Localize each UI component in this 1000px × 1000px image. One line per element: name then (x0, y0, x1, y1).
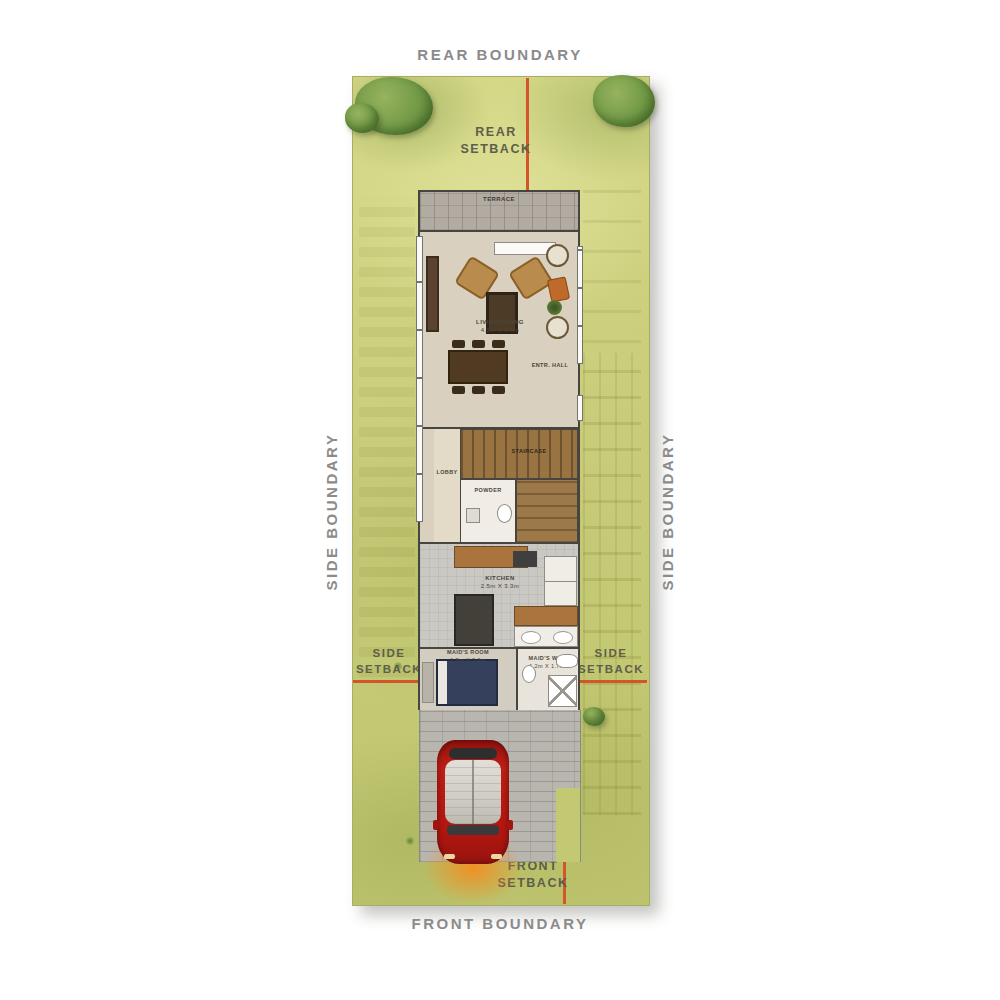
grass-tuft-icon (405, 837, 415, 845)
bush-icon (583, 707, 605, 726)
rear-setback-line1: REAR (444, 124, 548, 141)
headlight-icon (491, 854, 502, 859)
sink-icon (466, 508, 480, 523)
entry-hall-label: ENTR. HALL (522, 362, 578, 370)
accent-chair (547, 276, 570, 302)
powder-label: POWDER (461, 487, 515, 495)
room-lobby: LOBBY (434, 429, 461, 544)
cooking-range-icon (513, 551, 537, 567)
side-boundary-right-label: SIDE BOUNDARY (659, 427, 676, 597)
front-boundary-label: FRONT BOUNDARY (352, 915, 648, 932)
fridge-icon (544, 556, 577, 606)
side-boundary-left-label: SIDE BOUNDARY (323, 427, 340, 597)
car-mirror (433, 820, 439, 830)
car-icon (437, 740, 509, 870)
dining-chair (452, 386, 465, 394)
lawn-notch (556, 788, 580, 862)
house-footprint: TERRACE LIVING/DINING 4.2m X 3.6m ENTR. … (418, 190, 580, 710)
maid-room-name: MAID'S ROOM (447, 649, 489, 655)
dining-chair (472, 386, 485, 394)
lobby-label: LOBBY (434, 469, 460, 477)
window-band-left (416, 236, 423, 522)
maid-room-dims: 1.8m X 2.3m (426, 657, 510, 665)
living-dining-name: LIVING/DINING (476, 319, 524, 325)
dining-table (448, 350, 508, 384)
maid-room-label: MAID'S ROOM 1.8m X 2.3m (426, 649, 510, 664)
toilet-icon (497, 504, 512, 523)
pillow-icon (438, 661, 447, 704)
side-setback-line-right (578, 680, 647, 683)
dining-chair (492, 340, 505, 348)
deck-pattern-right (583, 353, 641, 815)
living-dining-label: LIVING/DINING 4.2m X 3.6m (454, 318, 546, 335)
kitchen-counter (454, 546, 528, 568)
deck-pattern-right-top (583, 173, 641, 343)
rear-setback-label: REAR SETBACK (444, 124, 548, 158)
living-dining-dims: 4.2m X 3.6m (454, 326, 546, 334)
sink-icon (521, 631, 541, 644)
side-setback-left-line2: SETBACK (350, 662, 428, 678)
side-table (546, 316, 569, 339)
kitchen-label: KITCHEN 2.5m X 3.3m (458, 574, 542, 591)
side-setback-right-line2: SETBACK (572, 662, 650, 678)
staircase-lower-flight (516, 479, 578, 544)
shower-icon (548, 675, 577, 707)
staircase-label: STAIRCASE (489, 448, 569, 456)
kitchen-dims: 2.5m X 3.3m (458, 582, 542, 590)
wardrobe-icon (422, 662, 434, 703)
side-table (546, 244, 569, 267)
entry-door-opening (577, 395, 583, 421)
room-terrace: TERRACE (420, 192, 578, 232)
fridge-divider (545, 581, 576, 582)
room-living-dining: LIVING/DINING 4.2m X 3.6m ENTR. HALL (420, 232, 578, 427)
car-roof (445, 760, 501, 824)
sink-icon (556, 654, 578, 668)
site-plan-canvas: REAR BOUNDARY FRONT BOUNDARY SIDE BOUNDA… (0, 0, 1000, 1000)
dining-chair (452, 340, 465, 348)
dining-chair (492, 386, 505, 394)
tv-unit (426, 256, 439, 332)
sink-icon (553, 631, 573, 644)
toilet-icon (522, 665, 536, 683)
plant-icon (547, 300, 562, 315)
side-setback-left-label: SIDE SETBACK (350, 646, 428, 677)
kitchen-island (454, 594, 494, 646)
room-powder: POWDER (460, 479, 516, 544)
kitchen-sink-counter (514, 626, 578, 647)
rear-setback-line2: SETBACK (444, 141, 548, 158)
kitchen-counter (514, 606, 578, 626)
car-windshield (447, 825, 499, 835)
headlight-icon (444, 854, 455, 859)
side-setback-right-label: SIDE SETBACK (572, 646, 650, 677)
lawn-texture-left (359, 197, 415, 677)
tree-icon (593, 75, 655, 127)
maid-zone: MAID'S ROOM 1.8m X 2.3m MAID'S W.C. 1.2m… (420, 647, 578, 710)
side-setback-left-line1: SIDE (350, 646, 428, 662)
rear-boundary-label: REAR BOUNDARY (352, 46, 648, 63)
stair-zone: LOBBY STAIRCASE POWDER (420, 427, 578, 544)
dining-chair (472, 340, 485, 348)
kitchen-name: KITCHEN (485, 575, 514, 581)
car-rear-window (449, 748, 497, 759)
car-mirror (507, 820, 513, 830)
room-kitchen: KITCHEN 2.5m X 3.3m (420, 542, 578, 649)
tree-icon (345, 103, 379, 133)
staircase: STAIRCASE (460, 429, 578, 479)
side-setback-right-line1: SIDE (572, 646, 650, 662)
terrace-label: TERRACE (420, 195, 578, 203)
side-setback-line-left (353, 680, 419, 683)
window-band-right (577, 246, 583, 364)
